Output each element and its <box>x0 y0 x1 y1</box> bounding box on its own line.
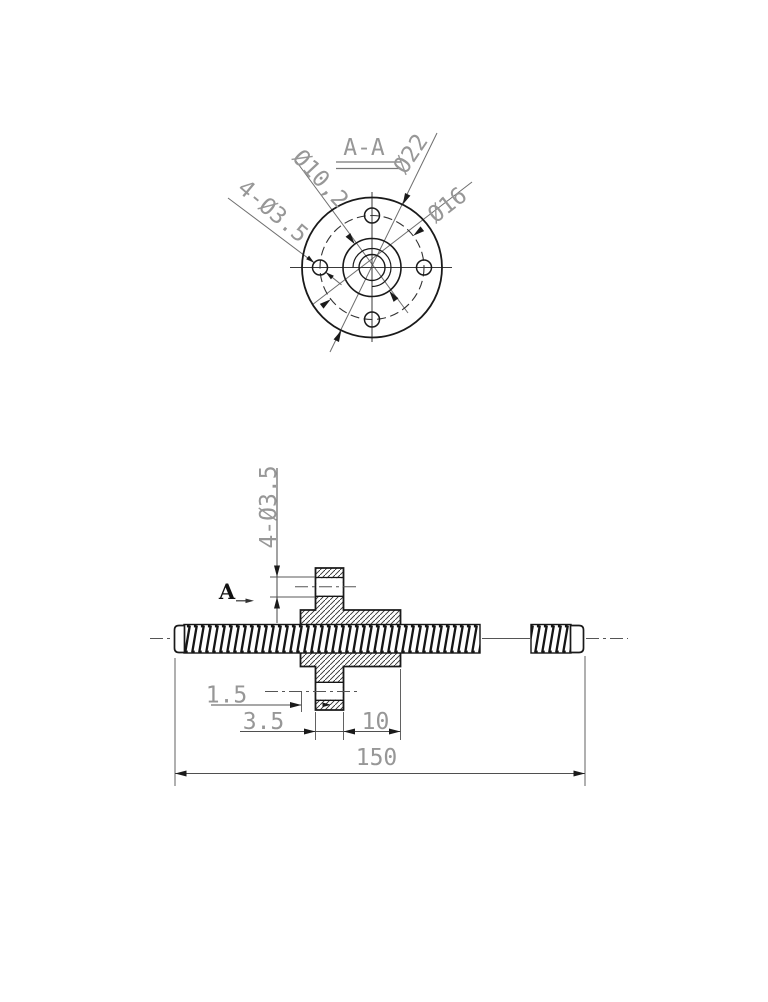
drawing-canvas: A-A Ø10,2 Ø22 Ø16 4-Ø3.5 <box>0 0 768 1002</box>
section-arrow-label: A <box>218 579 236 604</box>
dim-label-body-length: 10 <box>362 709 390 735</box>
dim-label-flange-thickness: 3.5 <box>243 709 285 735</box>
dim-label-bolt-holes-side: 4-Ø3.5 <box>256 465 282 548</box>
section-title: A-A <box>343 135 385 161</box>
dim-label-overall-length: 150 <box>356 745 398 771</box>
screw-thread-right-piece <box>531 625 571 654</box>
screw-thread-main <box>184 625 480 654</box>
dim-label-boss-lip: 1.5 <box>206 683 248 709</box>
screw-right-end-cap <box>571 626 584 653</box>
lead-screw-drawing: A-A Ø10,2 Ø22 Ø16 4-Ø3.5 <box>0 0 768 1002</box>
screw-left-end-cap <box>175 626 185 653</box>
